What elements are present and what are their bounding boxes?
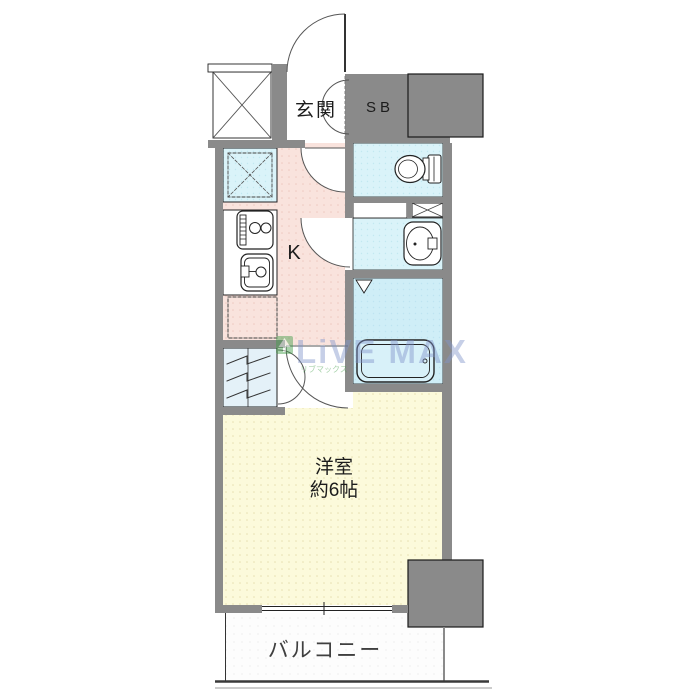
pipe-space-icon (213, 72, 271, 138)
floorplan-page: 玄関 SB K 洋室 約6帖 バルコニー LiVE MAX リブマックス (0, 0, 700, 700)
wall-washer-divider (407, 203, 412, 218)
kitchen-label: K (287, 242, 301, 264)
balcony-label: バルコニー (268, 639, 383, 662)
watermark-logo-icon (276, 336, 293, 354)
entrance-label: 玄関 (295, 99, 337, 121)
kitchen-sink-icon (241, 254, 273, 291)
watermark: LiVE MAX リブマックス (276, 333, 468, 374)
room-size-label: 約6帖 (310, 479, 359, 501)
floorplan-svg: 玄関 SB K 洋室 約6帖 バルコニー LiVE MAX リブマックス (0, 0, 700, 700)
wall-block-top-right (408, 74, 483, 137)
wall-bath-bottom (345, 384, 452, 392)
wall-room-bottom-right (392, 605, 408, 613)
room-name-label: 洋室 (315, 456, 353, 478)
wall-room-right (442, 392, 452, 560)
watermark-sub: リブマックス (300, 364, 348, 374)
wall-toilet-washroom (345, 197, 450, 203)
wall-closet-top (215, 340, 285, 348)
wall-core-upper (345, 143, 353, 218)
utility-space-icon (223, 148, 277, 202)
toilet-icon (395, 155, 441, 183)
washroom-cabinet (353, 202, 407, 218)
wall-closet-bottom (215, 407, 285, 415)
washing-machine-icon (412, 203, 443, 217)
wall-pier (272, 64, 287, 143)
wall-top-bar (208, 64, 272, 72)
wall-column-bottom-right (408, 560, 483, 627)
shoe-box-label: SB (366, 99, 394, 116)
stove-icon (237, 211, 273, 249)
wall-entrance-kitchen (223, 140, 305, 148)
wall-left (215, 140, 223, 612)
wall-washroom-bath (345, 270, 450, 278)
wall-room-bottom-left (215, 605, 262, 613)
washbasin-icon (404, 222, 441, 265)
